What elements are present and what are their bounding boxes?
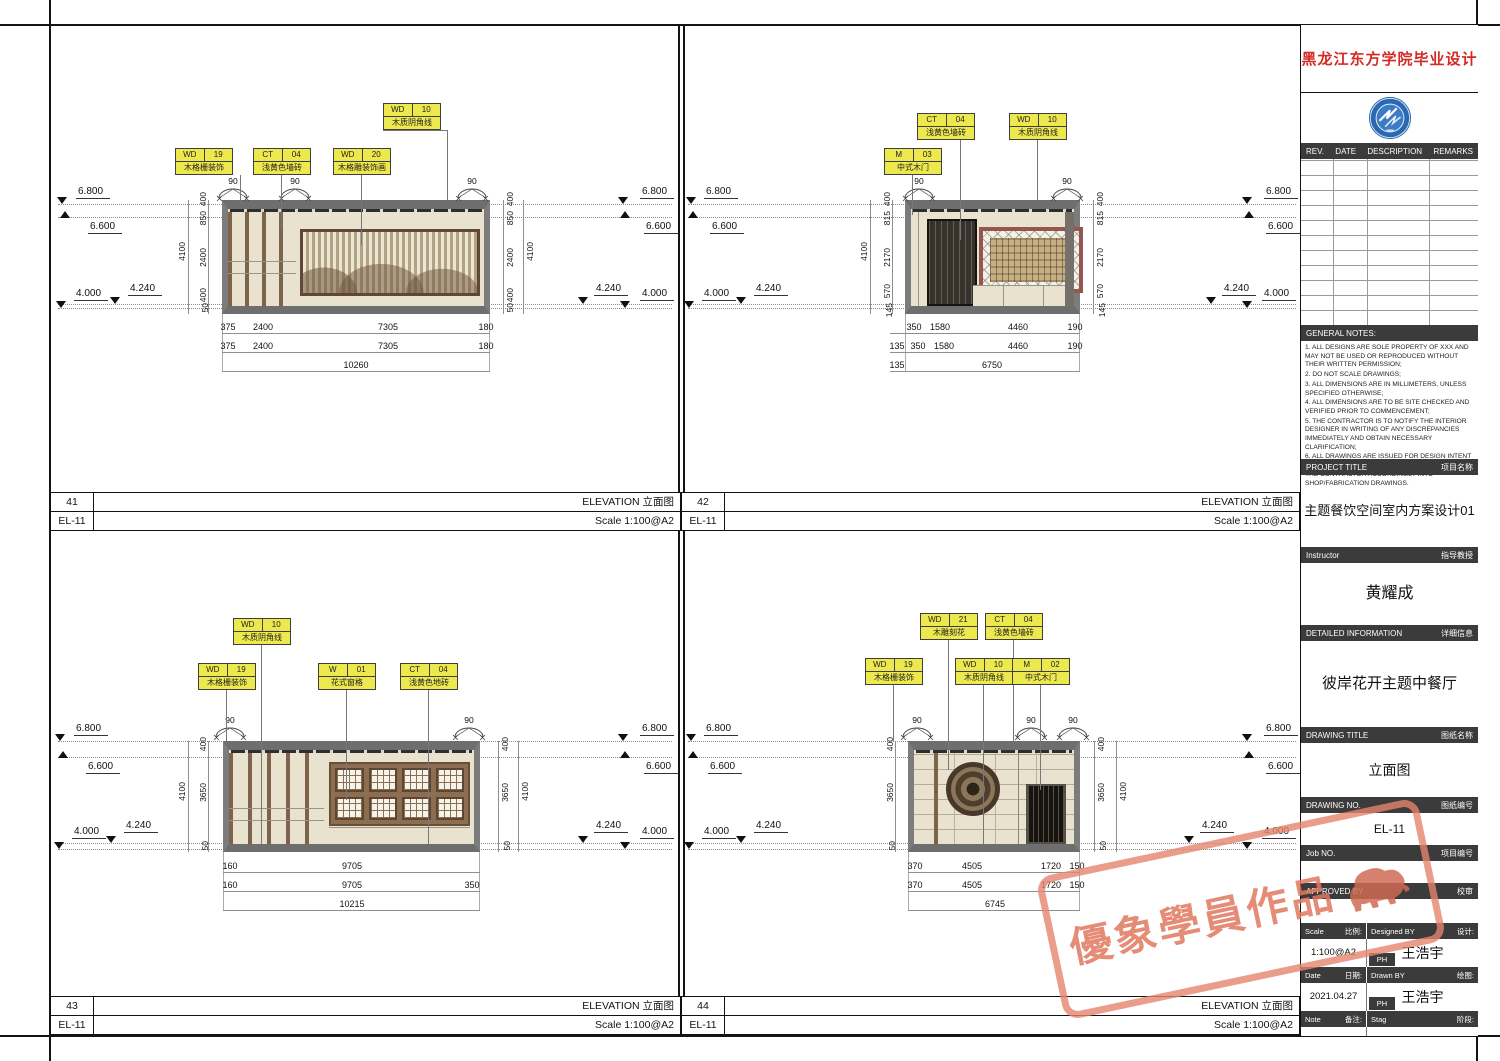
- level-label: 4.000: [1262, 826, 1296, 839]
- dim-chain: [498, 741, 499, 852]
- tag-leader: [240, 175, 241, 204]
- tag-number: 04: [429, 664, 458, 676]
- dimension: 815: [883, 211, 892, 225]
- bamboo-screen: [990, 238, 1072, 282]
- dimension: 135: [889, 360, 904, 370]
- downlight-angle: 90: [278, 177, 312, 186]
- instructor-header: Instructor 指导教授: [1301, 547, 1478, 563]
- level-label: 4.240: [128, 283, 162, 296]
- drawing-no-header: DRAWING NO. 图纸编号: [1301, 797, 1478, 813]
- level-label: 6.600: [1266, 761, 1300, 774]
- level-label: 4.240: [594, 820, 628, 833]
- tag-number: 10: [1038, 114, 1067, 126]
- tag-desc: 浅黄色墙砖: [986, 627, 1042, 639]
- dimension: 400: [1096, 192, 1105, 206]
- material-tag: M03 中式木门: [884, 148, 942, 175]
- level-label: 6.600: [88, 221, 122, 234]
- note-line: 3. ALL DIMENSIONS ARE IN MILLIMETERS, UN…: [1305, 381, 1474, 398]
- watermark-text: 優象學員作品: [1063, 859, 1340, 975]
- note-line: 2. DO NOT SCALE DRAWINGS;: [1305, 371, 1474, 380]
- dim-chain: [518, 741, 519, 852]
- dimension: 2170: [883, 248, 892, 267]
- tag-number: 02: [1041, 659, 1070, 671]
- tag-desc: 木质阴角线: [956, 672, 1012, 684]
- dim-chain: [1094, 741, 1095, 852]
- wall-base-band: [973, 285, 1074, 306]
- downlight-angle: 90: [1056, 716, 1090, 725]
- designed-by-badge: PH: [1369, 953, 1395, 966]
- downlight-symbol: 90: [900, 716, 934, 746]
- level-marker: [1206, 297, 1216, 304]
- viewport-label-41: 41ELEVATION 立面图 EL-11Scale 1:100@A2: [50, 492, 681, 531]
- lattice-window: [402, 768, 431, 792]
- drawn-by-zh: 绘图:: [1457, 970, 1474, 981]
- lattice-window: [402, 797, 431, 821]
- dimension: 400: [199, 192, 208, 206]
- scale-en: Scale: [1305, 927, 1324, 936]
- level-label: 4.000: [702, 826, 736, 839]
- project-title-en: PROJECT TITLE: [1306, 463, 1367, 472]
- material-tag: CT04 浅黄色墙砖: [253, 148, 311, 175]
- dimension: 4505: [962, 880, 982, 890]
- tag-number: 19: [204, 149, 233, 161]
- level-label: 6.600: [644, 761, 678, 774]
- detailed-info-value: 彼岸花开主题中餐厅: [1301, 641, 1478, 727]
- downlight-angle: 90: [216, 177, 250, 186]
- view-scale: Scale 1:100@A2: [94, 512, 680, 530]
- tag-number: 04: [946, 114, 975, 126]
- dim-chain: [208, 200, 209, 314]
- level-label: 4.240: [1222, 283, 1256, 296]
- dimension: 9705: [342, 880, 362, 890]
- school-title: 黑龙江东方学院毕业设计: [1301, 25, 1478, 93]
- level-marker: [736, 836, 746, 843]
- dim-chain: [870, 200, 871, 314]
- downlight-arc-icon: [455, 186, 489, 202]
- downlight-angle: 90: [900, 716, 934, 725]
- downlight-arc-icon: [900, 725, 934, 741]
- dim-line: [222, 333, 490, 334]
- dimension: 375: [220, 322, 235, 332]
- dimension: 160: [222, 880, 237, 890]
- dimension: 180: [478, 341, 493, 351]
- level-label: 4.240: [754, 283, 788, 296]
- dimension: 4460: [1008, 322, 1028, 332]
- downlight-arc-icon: [278, 186, 312, 202]
- view-title: ELEVATION 立面图: [725, 997, 1299, 1015]
- dimension: 1580: [934, 341, 954, 351]
- view-title: ELEVATION 立面图: [725, 493, 1299, 511]
- tag-code: WD: [956, 659, 984, 671]
- note-line: 5. THE CONTRACTOR IS TO NOTIFY THE INTER…: [1305, 418, 1474, 453]
- lattice-window: [369, 768, 398, 792]
- dim-chain: [523, 200, 524, 314]
- rev-col-line: [1367, 159, 1368, 325]
- tag-leader: [1040, 685, 1041, 790]
- tag-code: WD: [176, 149, 204, 161]
- view-sheet-no: EL-11: [682, 1016, 725, 1034]
- joint-line: [228, 273, 296, 274]
- window-lattice-grid: [329, 762, 470, 826]
- dimension-total: 4100: [1119, 782, 1128, 801]
- date-zh: 日期:: [1345, 970, 1362, 981]
- job-no-value: [1301, 861, 1478, 883]
- general-notes-label: GENERAL NOTES:: [1306, 329, 1376, 338]
- door-leaf: [1026, 784, 1066, 844]
- tag-number: 04: [282, 149, 311, 161]
- tag-leader: [960, 140, 961, 240]
- dimension: 3650: [1097, 783, 1106, 802]
- elevation-wall-41: [222, 200, 490, 314]
- level-marker: [620, 751, 630, 758]
- dimension: 400: [199, 288, 208, 302]
- tag-code: WD: [199, 664, 227, 676]
- wood-strip-wall: [229, 753, 324, 844]
- elevation-wall-42: [905, 200, 1080, 314]
- tag-number: 19: [227, 664, 256, 676]
- downlight-angle: 90: [1014, 716, 1048, 725]
- dimension: 2400: [253, 322, 273, 332]
- tag-code: W: [319, 664, 347, 676]
- project-title-header: PROJECT TITLE 项目名称: [1301, 459, 1478, 475]
- level-marker: [620, 842, 630, 849]
- rev-table-rows: [1301, 159, 1478, 325]
- level-marker: [618, 197, 628, 204]
- level-marker: [54, 842, 64, 849]
- tag-leader: [346, 690, 347, 800]
- level-label: 6.800: [640, 186, 674, 199]
- viewport-label-44: 44ELEVATION 立面图 EL-11Scale 1:100@A2: [681, 996, 1300, 1035]
- dim-line: [223, 872, 480, 873]
- dimension: 400: [506, 192, 515, 206]
- view-number: 43: [51, 997, 94, 1015]
- dimension: 2400: [199, 248, 208, 267]
- level-marker: [688, 211, 698, 218]
- material-tag: WD10 木质阴角线: [233, 618, 291, 645]
- dim-chain: [892, 200, 893, 314]
- tag-leader: [1013, 640, 1014, 741]
- level-label: 4.000: [74, 288, 108, 301]
- drawing-no-en: DRAWING NO.: [1306, 801, 1361, 810]
- tag-desc: 木格栅装饰: [199, 677, 255, 689]
- tag-number: 03: [913, 149, 942, 161]
- material-tag: WD10 木质阴角线: [955, 658, 1013, 685]
- view-sheet-no: EL-11: [51, 512, 94, 530]
- downlight-symbol: 90: [1014, 716, 1048, 746]
- dimension: 160: [222, 861, 237, 871]
- level-label: 6.600: [710, 221, 744, 234]
- level-label: 6.800: [640, 723, 674, 736]
- dimension: 375: [220, 341, 235, 351]
- joint-line: [229, 808, 324, 809]
- tag-code: M: [885, 149, 913, 161]
- downlight-arc-icon: [213, 725, 247, 741]
- dim-line: [222, 371, 490, 372]
- tag-number: 10: [984, 659, 1013, 671]
- tag-leader: [983, 685, 984, 845]
- tag-leader: [912, 175, 913, 215]
- dim-chain: [188, 200, 189, 314]
- dimension: 9705: [342, 861, 362, 871]
- rev-col-line: [1333, 159, 1334, 325]
- dimension: 3650: [886, 783, 895, 802]
- dimension: 1720: [1041, 861, 1061, 871]
- tag-desc: 木质阴角线: [384, 117, 440, 129]
- drawing-title-en: DRAWING TITLE: [1306, 731, 1368, 740]
- downlight-symbol: 90: [216, 177, 250, 207]
- dim-line: [908, 872, 1080, 873]
- level-label: 4.240: [1200, 820, 1234, 833]
- drawing-no-value: EL-11: [1301, 813, 1478, 845]
- downlight-symbol: 90: [455, 177, 489, 207]
- dimension-total: 6745: [985, 899, 1005, 909]
- level-label: 4.000: [640, 288, 674, 301]
- tag-desc: 木格栅装饰: [866, 672, 922, 684]
- tag-leader: [281, 175, 282, 230]
- slat-mounds: [303, 256, 477, 293]
- material-tag: WD19 木格栅装饰: [175, 148, 233, 175]
- approved-by-value: [1301, 899, 1478, 923]
- wall-grid: [911, 212, 927, 306]
- level-marker: [686, 197, 696, 204]
- tag-leader: [428, 690, 429, 845]
- material-tag: WD20 木格雕装饰画: [333, 148, 391, 175]
- note-stage-values: [1301, 1027, 1478, 1036]
- level-label: 6.800: [1264, 186, 1298, 199]
- dimension: 145: [885, 303, 894, 317]
- dim-line: [223, 910, 480, 911]
- lattice-window: [335, 768, 364, 792]
- approved-by-zh: 校审: [1457, 886, 1473, 897]
- tag-code: CT: [254, 149, 282, 161]
- drawn-by-badge: PH: [1369, 997, 1395, 1010]
- level-marker: [620, 211, 630, 218]
- dimension: 190: [1067, 341, 1082, 351]
- dimension: 400: [506, 288, 515, 302]
- level-marker: [1242, 197, 1252, 204]
- school-title-text: 黑龙江东方学院毕业设计: [1301, 48, 1477, 69]
- dim-line: [222, 352, 490, 353]
- detailed-info-header: DETAILED INFORMATION 详细信息: [1301, 625, 1478, 641]
- note-stage-header: Note备注: Stag阶段:: [1301, 1011, 1478, 1027]
- tag-desc: 木质阴角线: [1010, 127, 1066, 139]
- approved-by-en: APPROVED BY: [1306, 887, 1363, 896]
- scale-zh: 比例:: [1345, 926, 1362, 937]
- level-marker: [1242, 734, 1252, 741]
- dimension: 570: [1096, 284, 1105, 298]
- dimension-total: 10215: [339, 899, 364, 909]
- dimension: 50: [201, 841, 210, 850]
- note-value: [1301, 1027, 1367, 1036]
- dimension: 350: [910, 341, 925, 351]
- downlight-symbol: 90: [213, 716, 247, 746]
- drawn-by-en: Drawn BY: [1371, 971, 1405, 980]
- dimension: 50: [503, 841, 512, 850]
- viewport-label-43: 43ELEVATION 立面图 EL-11Scale 1:100@A2: [50, 996, 681, 1035]
- material-tag: CT04 浅黄色墙砖: [917, 113, 975, 140]
- dimension: 400: [501, 737, 510, 751]
- dimension: 1720: [1041, 880, 1061, 890]
- dimension: 150: [1069, 861, 1084, 871]
- dimension: 50: [1099, 841, 1108, 850]
- description-col: DESCRIPTION: [1367, 147, 1422, 156]
- tag-leader: [361, 175, 362, 245]
- level-label: 6.600: [644, 221, 678, 234]
- ceiling-band: [913, 209, 1072, 212]
- door-leaf: [927, 219, 977, 306]
- downlight-arc-icon: [1056, 725, 1090, 741]
- level-label: 6.800: [76, 186, 110, 199]
- level-marker: [56, 301, 66, 308]
- date-en: Date: [1305, 971, 1321, 980]
- level-label: 6.600: [708, 761, 742, 774]
- date-value: 2021.04.27: [1301, 983, 1367, 1011]
- lattice-window: [335, 797, 364, 821]
- detailed-info-zh: 详细信息: [1441, 628, 1473, 639]
- dimension-total: 4100: [178, 782, 187, 801]
- scale-value: 1:100@A2: [1301, 939, 1367, 967]
- downlight-symbol: 90: [1050, 177, 1084, 207]
- rev-col: REV.: [1306, 147, 1324, 156]
- downlight-arc-icon: [1014, 725, 1048, 741]
- tag-code: WD: [1010, 114, 1038, 126]
- dim-chain: [208, 741, 209, 852]
- view-number: 42: [682, 493, 725, 511]
- level-marker: [1242, 301, 1252, 308]
- general-notes-header: GENERAL NOTES:: [1301, 325, 1478, 341]
- level-label: 6.800: [1264, 723, 1298, 736]
- dim-line: [908, 910, 1080, 911]
- job-no-zh: 项目编号: [1441, 848, 1473, 859]
- dim-line: [223, 891, 480, 892]
- downlight-arc-icon: [452, 725, 486, 741]
- university-emblem-icon: [1367, 95, 1413, 141]
- dim-chain: [1093, 200, 1094, 314]
- level-marker: [57, 197, 67, 204]
- dimension: 4505: [962, 861, 982, 871]
- tag-number: 10: [262, 619, 291, 631]
- elevation-wall-44: [908, 741, 1080, 852]
- dim-line: [890, 352, 1080, 353]
- stage-value: [1367, 1027, 1478, 1036]
- view-title: ELEVATION 立面图: [94, 997, 680, 1015]
- stage-zh: 阶段:: [1457, 1014, 1474, 1025]
- level-label: 4.000: [640, 826, 674, 839]
- dimension: 4460: [1008, 341, 1028, 351]
- level-marker: [60, 211, 70, 218]
- material-tag: WD10 木质阴角线: [1009, 113, 1067, 140]
- general-notes-body: 1. ALL DESIGNS ARE SOLE PROPERTY OF XXX …: [1301, 341, 1478, 459]
- view-sheet-no: EL-11: [51, 1016, 94, 1034]
- dimension: 50: [201, 303, 210, 312]
- remarks-col: REMARKS: [1433, 147, 1473, 156]
- project-title-zh: 项目名称: [1441, 462, 1473, 473]
- tag-number: 01: [347, 664, 376, 676]
- dimension: 135: [889, 341, 904, 351]
- dim-chain: [188, 741, 189, 852]
- dimension-total: 4100: [521, 782, 530, 801]
- level-marker: [1244, 751, 1254, 758]
- dimension: 350: [464, 880, 479, 890]
- designed-by-en: Designed BY: [1371, 927, 1415, 936]
- dimension-total: 6750: [982, 360, 1002, 370]
- dim-chain: [503, 200, 504, 314]
- dimension: 50: [888, 841, 897, 850]
- level-marker: [620, 301, 630, 308]
- lattice-window: [369, 797, 398, 821]
- level-label: 6.600: [86, 761, 120, 774]
- tag-code: WD: [921, 614, 949, 626]
- tag-code: WD: [334, 149, 362, 161]
- dimension-total: 4100: [860, 242, 869, 261]
- tag-code: WD: [234, 619, 262, 631]
- drawing-no-zh: 图纸编号: [1441, 800, 1473, 811]
- level-marker: [106, 836, 116, 843]
- approved-by-header: APPROVED BY 校审: [1301, 883, 1478, 899]
- dimension: 1580: [930, 322, 950, 332]
- sheet-border-bottom: [0, 1035, 1500, 1037]
- level-marker: [1242, 842, 1252, 849]
- downlight-symbol: 90: [452, 716, 486, 746]
- dimension: 3650: [199, 783, 208, 802]
- school-logo: [1301, 93, 1478, 143]
- tag-code: CT: [986, 614, 1014, 626]
- date-col: DATE: [1335, 147, 1356, 156]
- tag-number: 04: [1014, 614, 1043, 626]
- level-marker: [684, 842, 694, 849]
- downlight-symbol: 90: [902, 177, 936, 207]
- downlight-arc-icon: [902, 186, 936, 202]
- dimension: 850: [199, 211, 208, 225]
- level-marker: [578, 297, 588, 304]
- tag-leader: [226, 690, 227, 741]
- tag-desc: 浅黄色地砖: [401, 677, 457, 689]
- stage-en: Stag: [1371, 1015, 1386, 1024]
- detailed-info-en: DETAILED INFORMATION: [1306, 629, 1402, 638]
- view-scale: Scale 1:100@A2: [725, 512, 1299, 530]
- dimension: 570: [883, 284, 892, 298]
- level-label: 6.800: [704, 723, 738, 736]
- dimension-total: 4100: [526, 242, 535, 261]
- slat-screen-panel: [300, 229, 480, 296]
- level-marker: [58, 751, 68, 758]
- dimension: 2400: [506, 248, 515, 267]
- material-tag: CT04 浅黄色地砖: [400, 663, 458, 690]
- dimension: 7305: [378, 341, 398, 351]
- level-label: 4.000: [702, 288, 736, 301]
- view-number: 41: [51, 493, 94, 511]
- level-label: 4.240: [754, 820, 788, 833]
- wood-strip: [934, 753, 938, 844]
- downlight-angle: 90: [455, 177, 489, 186]
- tag-code: WD: [866, 659, 894, 671]
- tag-desc: 花式窗格: [319, 677, 375, 689]
- dimension: 370: [907, 880, 922, 890]
- tag-number: 19: [894, 659, 923, 671]
- job-no-en: Job NO.: [1306, 849, 1335, 858]
- joint-line: [229, 820, 324, 821]
- level-label: 6.600: [1266, 221, 1300, 234]
- downlight-angle: 90: [1050, 177, 1084, 186]
- tag-desc: 浅黄色墙砖: [918, 127, 974, 139]
- sheet-border-top: [0, 24, 1500, 26]
- instructor-zh: 指导教授: [1441, 550, 1473, 561]
- tag-code: WD: [384, 104, 412, 116]
- downlight-arc-icon: [216, 186, 250, 202]
- dimension: 145: [1098, 303, 1107, 317]
- drawing-title-header: DRAWING TITLE 图纸名称: [1301, 727, 1478, 743]
- rev-col-line: [1429, 159, 1430, 325]
